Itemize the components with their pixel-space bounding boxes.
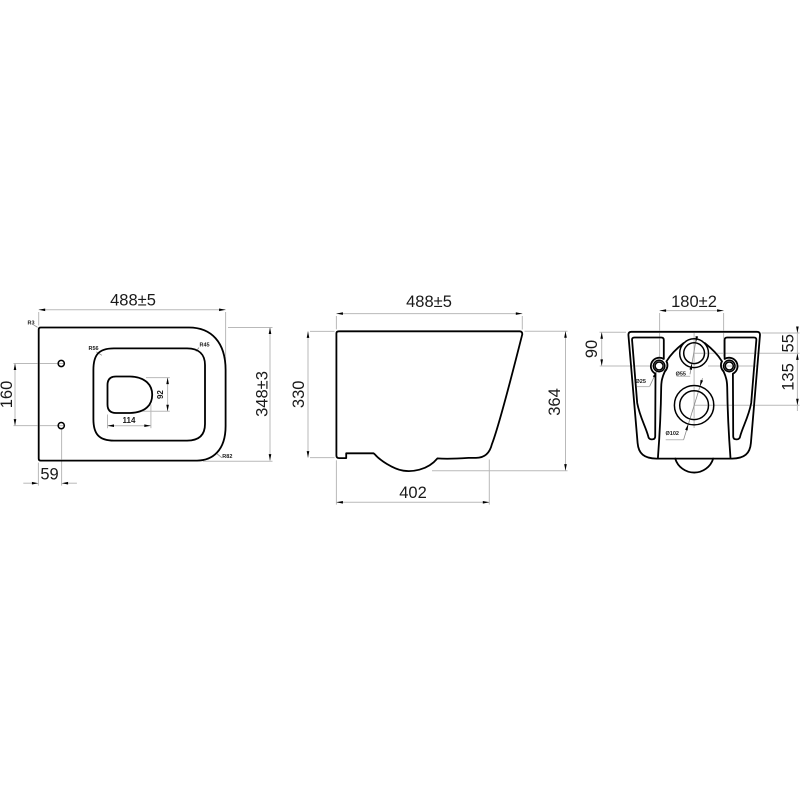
svg-text:55: 55	[780, 334, 798, 352]
svg-text:R56: R56	[89, 346, 99, 352]
svg-text:R45: R45	[200, 342, 210, 348]
svg-text:348±3: 348±3	[254, 371, 272, 417]
svg-text:R3: R3	[28, 320, 35, 326]
svg-text:59: 59	[40, 466, 58, 484]
svg-text:Ø102: Ø102	[666, 431, 679, 437]
svg-text:402: 402	[399, 484, 427, 502]
svg-text:330: 330	[290, 381, 308, 409]
svg-text:160: 160	[0, 381, 16, 409]
svg-text:488±5: 488±5	[110, 292, 156, 310]
svg-text:R82: R82	[222, 454, 232, 460]
svg-text:114: 114	[123, 416, 136, 425]
svg-text:488±5: 488±5	[406, 293, 452, 311]
svg-text:92: 92	[156, 390, 165, 399]
svg-text:135: 135	[780, 363, 798, 391]
svg-text:Ø25: Ø25	[636, 379, 646, 385]
svg-text:90: 90	[583, 340, 601, 358]
svg-text:180±2: 180±2	[671, 293, 717, 311]
svg-text:364: 364	[546, 388, 564, 416]
